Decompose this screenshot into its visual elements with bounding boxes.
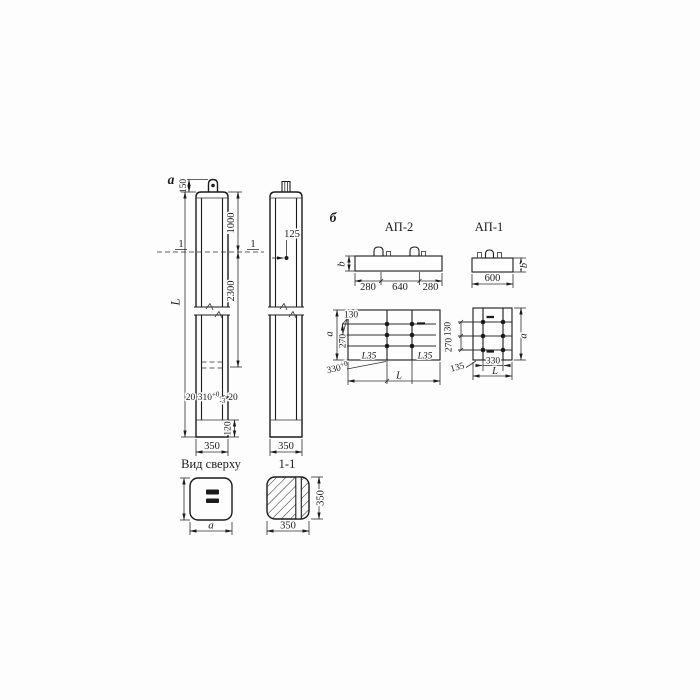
ap2-plan-dim-330-label: 330+0	[325, 359, 349, 376]
section-mark-left: 1	[178, 238, 184, 250]
figure-b-marker: б	[330, 210, 338, 225]
ap2-loop-left	[374, 247, 383, 256]
dim-350-front-label: 350	[204, 441, 220, 452]
column-front-lower-outline	[196, 315, 228, 437]
dim-350-section-right-label: 350	[316, 490, 327, 506]
ap1-bar	[472, 258, 513, 272]
ap1-plan-dim-a-label: a	[519, 333, 530, 338]
ap2-loop-right	[410, 247, 419, 256]
ap2-plan-angle-left-label: L35	[361, 352, 377, 362]
ap1-plan-dim-270-label: 270	[445, 338, 455, 353]
section-1-1-view: 1-1 350 350	[267, 457, 327, 535]
dim-1000-label: 1000	[226, 213, 237, 234]
ap2-elevation: АП-2 b 280 640 280	[337, 220, 443, 293]
top-view-title: Вид сверху	[181, 457, 241, 471]
ap1-plan-dim-L-label: L	[491, 366, 498, 377]
ap2-title: АП-2	[385, 220, 413, 234]
ap1-dim-b-label: b	[519, 263, 530, 268]
technical-drawing: а 150 L 1000 2300 1 1	[0, 0, 700, 700]
ap2-dim-b-label: b	[337, 261, 348, 266]
ap2-plan-dim-130-label: 130	[344, 311, 359, 321]
ap1-title: АП-1	[475, 220, 503, 234]
dim-20-left-label: 20	[186, 393, 196, 403]
dim-2300-label: 2300	[226, 281, 237, 302]
ap2-plan: a 270 130 L35 L35 330+0 L	[325, 310, 441, 385]
dim-350-section-bottom-label: 350	[280, 521, 296, 532]
loop-seen-from-top	[206, 490, 219, 495]
dim-150-label: 150	[179, 179, 189, 194]
ap2-bar	[355, 256, 442, 271]
drawing-canvas: а 150 L 1000 2300 1 1	[0, 0, 700, 700]
column-side-upper-outline	[270, 192, 302, 307]
dim-20-right-label: 20	[228, 393, 238, 403]
dim-310-label: 310+0-3	[198, 391, 226, 406]
ap1-plan-dim-135-label: 135	[449, 361, 466, 374]
ap1-dim-600-label: 600	[485, 273, 501, 284]
section-mark-right: 1	[250, 238, 256, 250]
dim-125-label: 125	[284, 229, 300, 240]
dim-120-label: 120	[224, 421, 234, 436]
column-front-view: а 150 L 1000 2300 1 1	[157, 172, 264, 456]
ap1-elevation: АП-1 600 b	[472, 220, 530, 288]
column-side-view: 125 350	[268, 182, 304, 457]
ap2-dim-280-left-label: 280	[360, 282, 376, 293]
dim-a-top-view-label: а	[208, 520, 214, 532]
dim-L-label: L	[169, 298, 183, 306]
figure-a-marker: а	[168, 172, 175, 187]
column-side-lower-outline	[270, 315, 302, 437]
section-title: 1-1	[279, 457, 296, 471]
column-front-upper-outline	[196, 192, 228, 307]
ap2-plan-dim-a-label: a	[325, 331, 336, 336]
ap1-loop	[486, 250, 494, 258]
section-outline-hatched	[267, 477, 309, 519]
top-stub	[282, 182, 290, 193]
dim-350-side-label: 350	[278, 441, 294, 452]
ap2-dim-280-right-label: 280	[423, 282, 439, 293]
ap2-plan-dim-L-label: L	[395, 371, 402, 382]
section-void-strip	[296, 478, 302, 518]
ap2-plan-dim-270-label: 270	[339, 334, 349, 349]
ap1-plan-dim-130-label: 130	[444, 322, 454, 337]
ap2-dim-640-label: 640	[392, 282, 408, 293]
ap1-plan-dim-330-label: 330	[486, 357, 501, 367]
ap2-plan-angle-right-label: L35	[417, 352, 433, 362]
top-view: Вид сверху а	[180, 457, 242, 535]
ap1-plan: 130 270 135 330 L a	[444, 308, 530, 380]
